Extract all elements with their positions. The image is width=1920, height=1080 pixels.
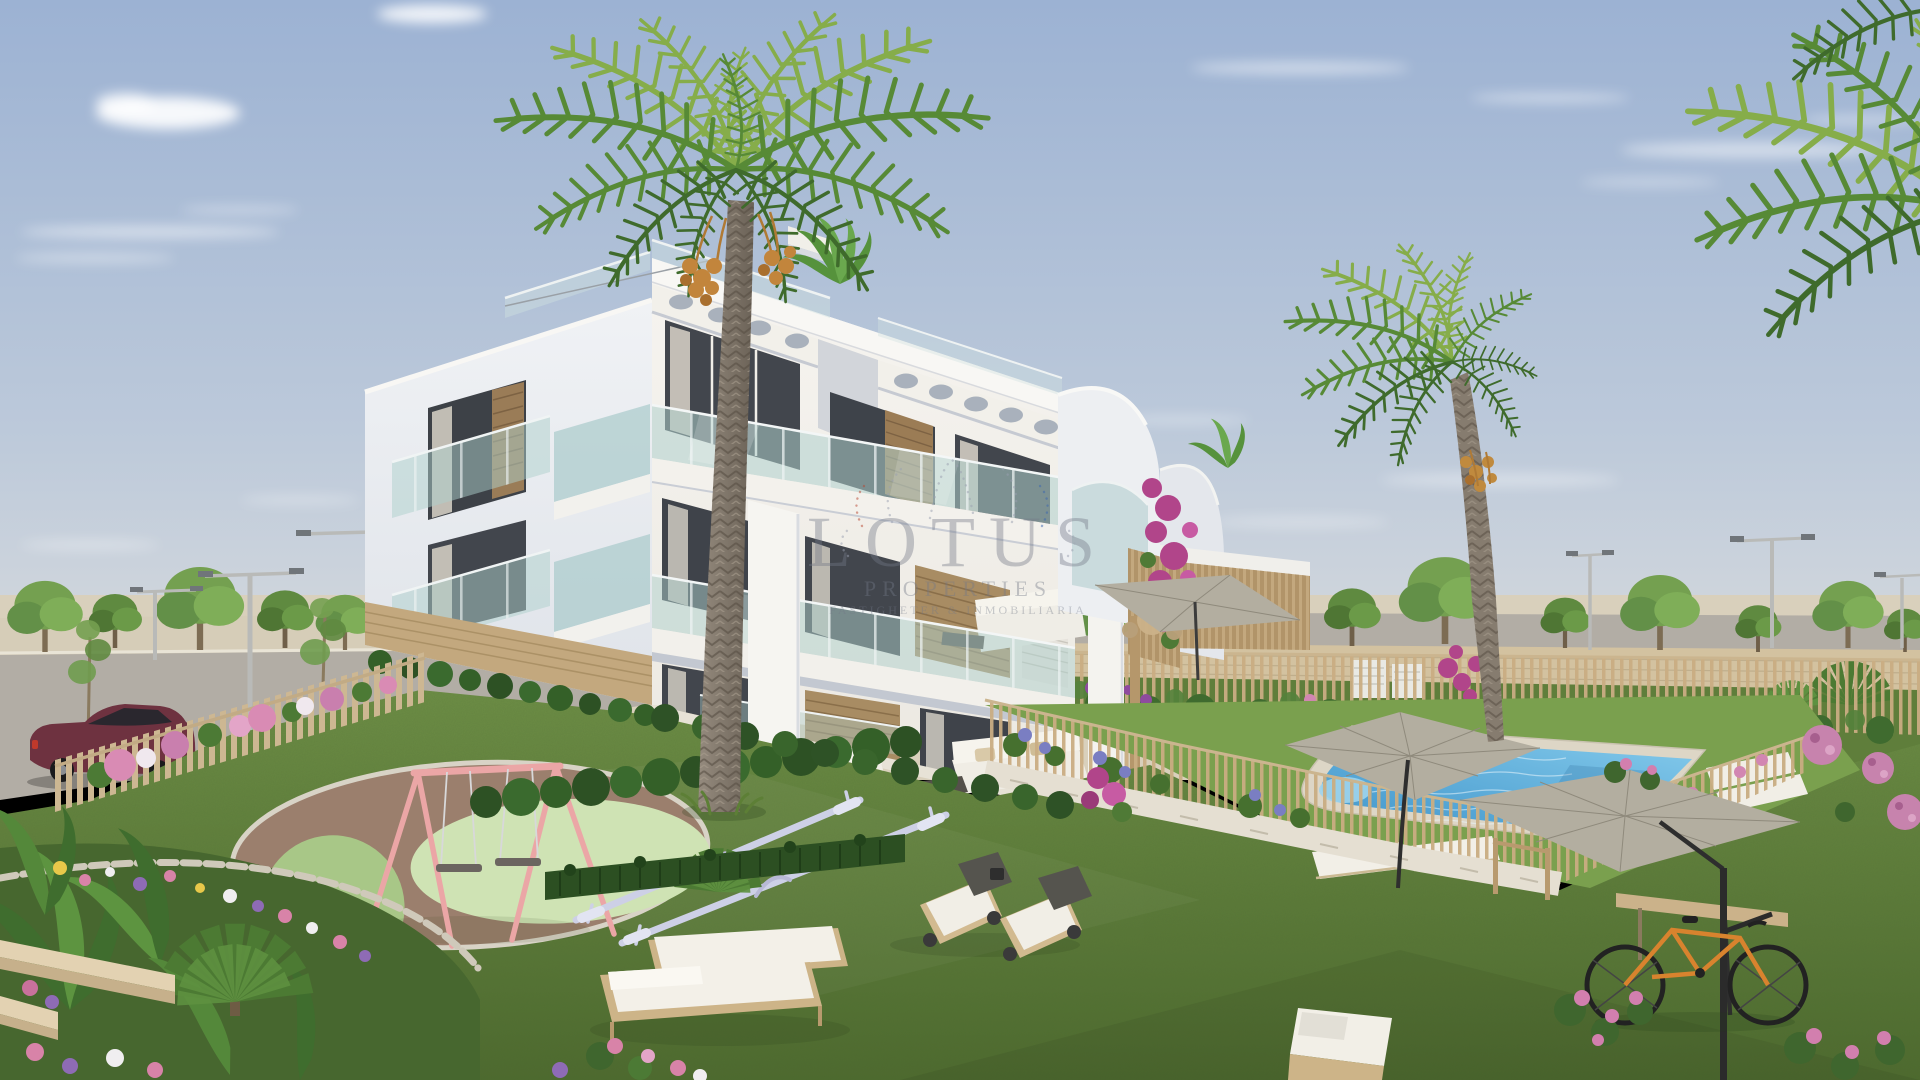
lounger-bottom xyxy=(1288,1008,1392,1080)
watermark-brand: LOTUS xyxy=(807,502,1109,582)
watermark-line2: PROPERTIES xyxy=(864,576,1052,601)
render-canvas: LOTUS PROPERTIES FASTIGHETER & INMOBILIA… xyxy=(0,0,1920,1080)
watermark-line3: FASTIGHETER & INMOBILIARIA xyxy=(829,603,1087,617)
